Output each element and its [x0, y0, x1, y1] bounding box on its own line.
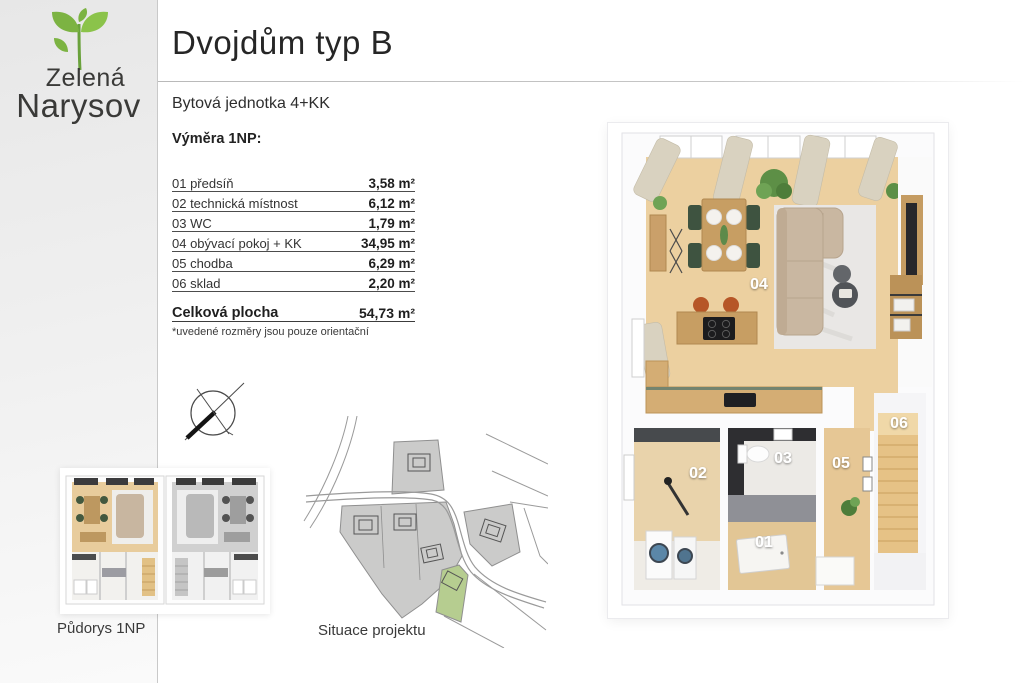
- disclaimer-footnote: *uvedené rozměry jsou pouze orientační: [172, 326, 369, 338]
- page-title: Dvojdům typ B: [172, 24, 393, 62]
- room-label: 05 chodba: [172, 256, 233, 271]
- room-label-01: 01: [755, 534, 773, 551]
- room-label: 01 předsíň: [172, 176, 233, 191]
- page-subtitle: Bytová jednotka 4+KK: [172, 95, 330, 113]
- room-label-03: 03: [774, 450, 792, 467]
- table-row: 02 technická místnost 6,12 m²: [172, 192, 415, 212]
- room-05-corridor: [816, 428, 872, 590]
- room-label: 04 obývací pokoj + KK: [172, 236, 302, 251]
- room-area: 6,12 m²: [368, 196, 415, 211]
- skylight-windows: [660, 136, 876, 158]
- landing: [728, 495, 816, 522]
- mini-floorplan-image: [60, 468, 270, 614]
- room-label-06: 06: [890, 415, 908, 432]
- header-rule: [158, 81, 1024, 82]
- floorplan-thumb-caption: Půdorys 1NP: [57, 620, 145, 637]
- room-03-wc: [728, 428, 816, 495]
- site-plan-image: [296, 416, 548, 648]
- total-label: Celková plocha: [172, 305, 278, 321]
- table-row: 04 obývací pokoj + KK 34,95 m²: [172, 232, 415, 252]
- brand-line2: Narysov: [0, 89, 157, 122]
- bookshelf: [890, 275, 922, 339]
- brand-logo: Zelená Narysov: [0, 8, 157, 122]
- room-label-05: 05: [832, 455, 850, 472]
- site-plan-caption: Situace projektu: [318, 622, 426, 639]
- floorplan-thumbnail: [60, 468, 270, 614]
- room-area: 2,20 m²: [368, 276, 415, 291]
- brochure-page: Zelená Narysov Dvojdům typ B Bytová jedn…: [0, 0, 1024, 683]
- room-area: 1,79 m²: [368, 216, 415, 231]
- room-area: 6,29 m²: [368, 256, 415, 271]
- room-label: 02 technická místnost: [172, 196, 298, 211]
- tv: [906, 203, 917, 277]
- room-02-technical: [624, 428, 720, 590]
- room-label: 06 sklad: [172, 276, 220, 291]
- room-label-04: 04: [750, 276, 768, 293]
- table-row: 01 předsíň 3,58 m²: [172, 172, 415, 192]
- total-row: Celková plocha 54,73 m²: [172, 300, 415, 322]
- table-row: 05 chodba 6,29 m²: [172, 252, 415, 272]
- total-value: 54,73 m²: [359, 305, 415, 321]
- north-arrow-icon: [178, 376, 250, 448]
- table-row: 06 sklad 2,20 m²: [172, 272, 415, 292]
- floorplan-3d-render: 04 02 03 05 01 06: [608, 123, 948, 618]
- room-label: 03 WC: [172, 216, 212, 231]
- table-row: 03 WC 1,79 m²: [172, 212, 415, 232]
- area-table: 01 předsíň 3,58 m² 02 technická místnost…: [172, 172, 415, 292]
- room-label-02: 02: [689, 465, 707, 482]
- area-table-heading: Výměra 1NP:: [172, 131, 261, 147]
- room-area: 34,95 m²: [361, 236, 415, 251]
- room-area: 3,58 m²: [368, 176, 415, 191]
- room-01-hall: [728, 522, 816, 590]
